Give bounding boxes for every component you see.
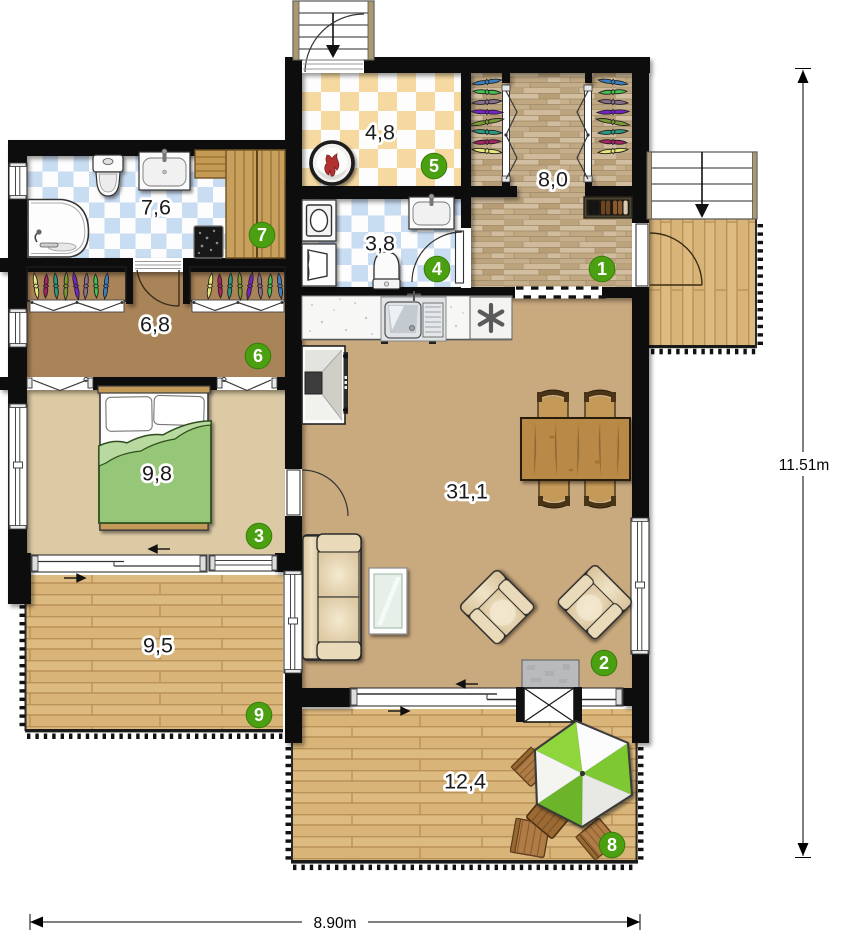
svg-text:8.90m: 8.90m bbox=[313, 915, 356, 932]
svg-text:6: 6 bbox=[253, 346, 263, 366]
svg-text:7: 7 bbox=[257, 225, 267, 245]
svg-text:5: 5 bbox=[429, 156, 439, 176]
svg-text:9,8: 9,8 bbox=[142, 462, 172, 486]
svg-text:1: 1 bbox=[597, 259, 607, 279]
svg-text:6,8: 6,8 bbox=[140, 313, 170, 337]
svg-text:12,4: 12,4 bbox=[444, 770, 486, 794]
svg-text:4: 4 bbox=[432, 259, 442, 279]
svg-text:31,1: 31,1 bbox=[446, 480, 488, 504]
svg-text:9,5: 9,5 bbox=[143, 634, 173, 658]
svg-text:11.51m: 11.51m bbox=[779, 457, 830, 474]
svg-text:9: 9 bbox=[254, 705, 264, 725]
svg-text:7,6: 7,6 bbox=[141, 196, 171, 220]
svg-text:3,8: 3,8 bbox=[365, 232, 395, 256]
svg-text:3: 3 bbox=[254, 526, 264, 546]
svg-text:8,0: 8,0 bbox=[538, 168, 568, 192]
svg-text:4,8: 4,8 bbox=[365, 121, 395, 145]
svg-text:2: 2 bbox=[599, 653, 609, 673]
svg-text:8: 8 bbox=[607, 835, 617, 855]
